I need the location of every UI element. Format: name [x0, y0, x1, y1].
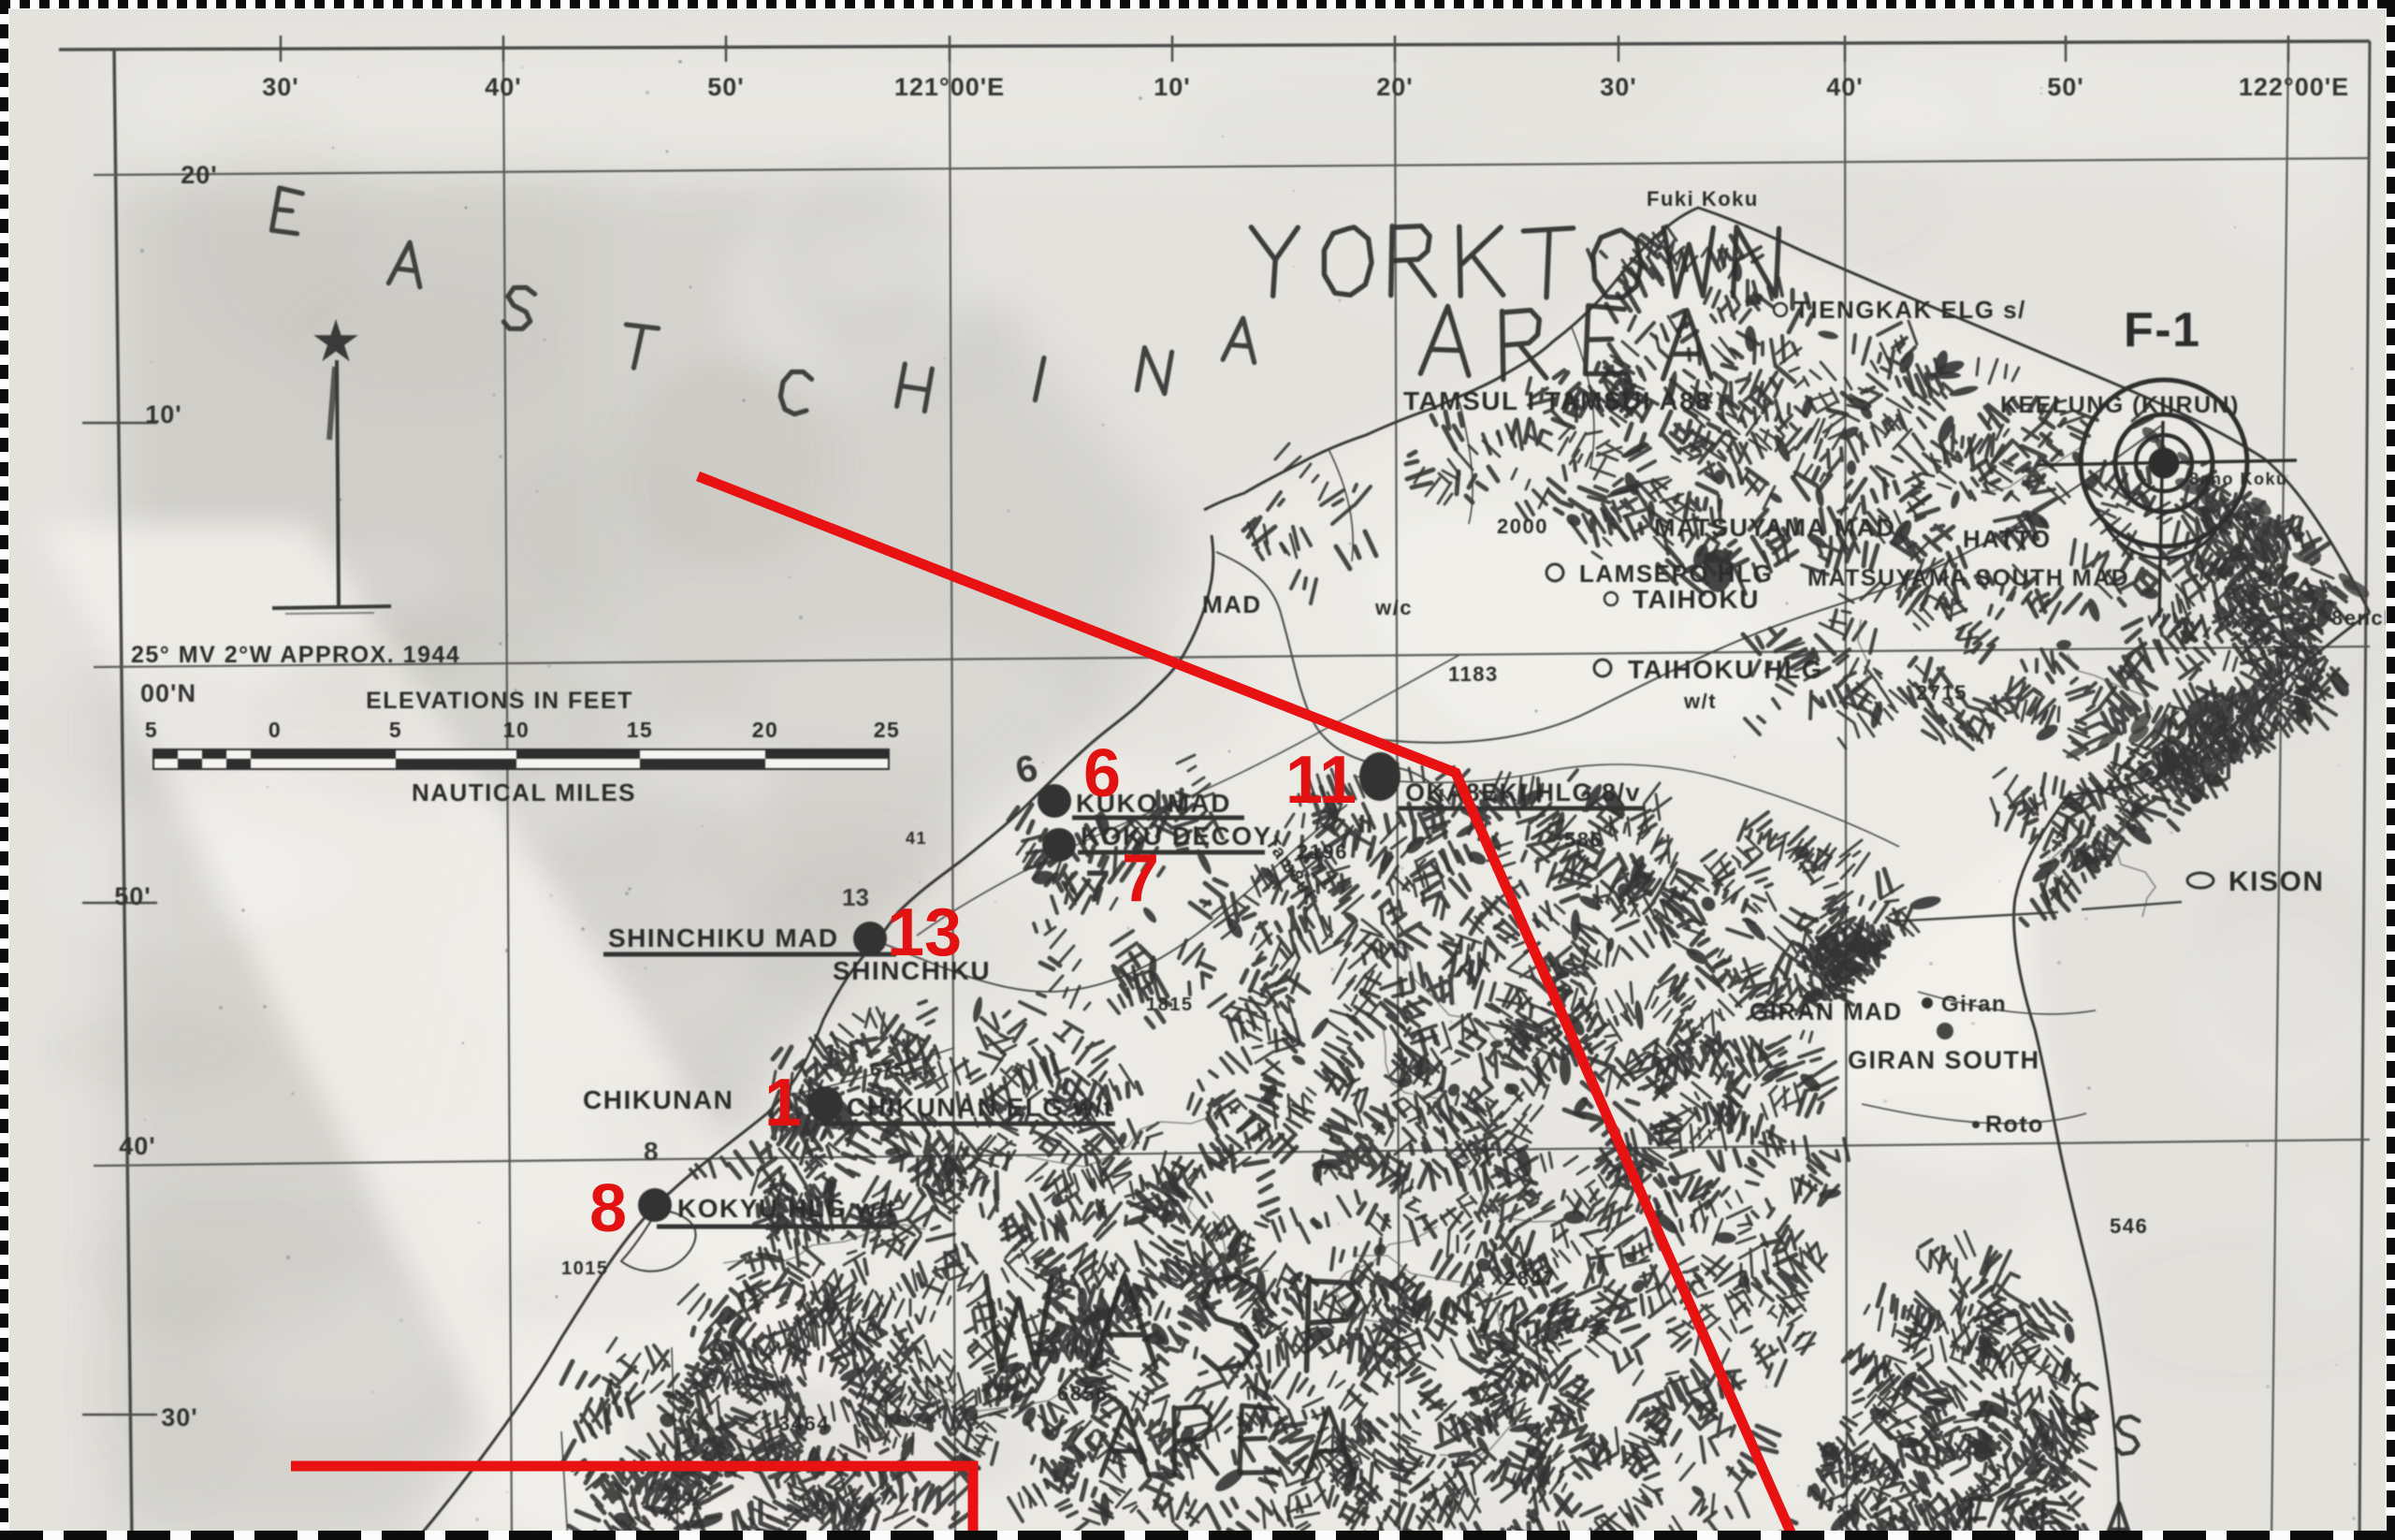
svg-text:Roto: Roto [1985, 1111, 2044, 1138]
svg-text:20': 20' [181, 161, 217, 189]
svg-text:20: 20 [752, 718, 779, 742]
svg-text:50': 50' [114, 882, 151, 910]
svg-text:HATTO: HATTO [1963, 525, 2052, 553]
svg-text:NAUTICAL MILES: NAUTICAL MILES [412, 778, 636, 806]
svg-text:2715: 2715 [1916, 681, 1967, 705]
svg-text:TAIHOKU HLG: TAIHOKU HLG [1628, 655, 1823, 684]
svg-text:0: 0 [269, 718, 282, 742]
svg-text:OKA8EKI HLG 8/v: OKA8EKI HLG 8/v [1405, 778, 1641, 806]
svg-text:ELEVATIONS IN FEET: ELEVATIONS IN FEET [366, 688, 633, 714]
svg-text:20': 20' [1376, 73, 1413, 101]
svg-text:8ench: 8ench [2331, 606, 2395, 630]
svg-text:CHIKUNAN: CHIKUNAN [583, 1085, 733, 1114]
svg-text:2847: 2847 [1504, 1267, 1556, 1290]
svg-text:Fuki Koku: Fuki Koku [1647, 187, 1759, 211]
svg-text:KOKU DECOY: KOKU DECOY [1081, 821, 1272, 850]
svg-text:41: 41 [906, 829, 927, 848]
svg-text:121°00'E: 121°00'E [894, 73, 1005, 101]
svg-text:TIENGKAK ELG s/: TIENGKAK ELG s/ [1794, 296, 2026, 324]
svg-text:MAD: MAD [1202, 590, 1262, 618]
svg-text:GIRAN SOUTH: GIRAN SOUTH [1848, 1046, 2040, 1074]
svg-text:8: 8 [644, 1137, 659, 1166]
svg-text:586: 586 [1564, 828, 1603, 851]
svg-text:30': 30' [262, 73, 298, 101]
svg-text:6: 6 [1083, 736, 1121, 811]
svg-text:10': 10' [1154, 73, 1190, 101]
svg-text:F-1: F-1 [2124, 303, 2201, 357]
svg-text:LAMSEPO HLG: LAMSEPO HLG [1579, 559, 1773, 588]
svg-text:122°00'E: 122°00'E [2239, 73, 2349, 101]
svg-text:3464: 3464 [778, 1412, 830, 1435]
svg-text:SHINCHIKU MAD: SHINCHIKU MAD [608, 923, 839, 952]
svg-text:1015: 1015 [561, 1258, 609, 1279]
svg-text:675: 675 [870, 1060, 906, 1081]
svg-text:10': 10' [145, 400, 181, 429]
svg-text:50': 50' [2047, 73, 2083, 101]
svg-text:15: 15 [627, 718, 654, 742]
svg-text:w/t: w/t [1683, 690, 1717, 713]
svg-text:KISON: KISON [2228, 866, 2325, 897]
svg-text:7: 7 [1122, 841, 1159, 916]
svg-text:6856: 6856 [1057, 1382, 1109, 1405]
svg-text:1815: 1815 [1146, 995, 1194, 1015]
svg-text:1: 1 [821, 1039, 839, 1074]
svg-text:Giran: Giran [1941, 992, 2007, 1017]
svg-text:w/c: w/c [1374, 596, 1413, 619]
svg-text:2000: 2000 [1497, 515, 1548, 538]
svg-text:5: 5 [145, 718, 158, 742]
svg-text:TAIHOKU: TAIHOKU [1633, 585, 1760, 614]
svg-text:25° MV 2°W APPROX. 1944: 25° MV 2°W APPROX. 1944 [131, 642, 460, 668]
svg-text:MATSUYAMA SOUTH MAD: MATSUYAMA SOUTH MAD [1807, 565, 2129, 591]
svg-text:30': 30' [161, 1403, 197, 1431]
svg-text:25: 25 [874, 718, 901, 742]
svg-text:13: 13 [842, 883, 869, 911]
svg-text:546: 546 [2110, 1214, 2148, 1238]
svg-text:8ano Koku: 8ano Koku [2189, 470, 2288, 488]
svg-text:GIRAN MAD: GIRAN MAD [1749, 997, 1903, 1025]
svg-text:40': 40' [119, 1132, 155, 1160]
svg-text:00'N: 00'N [140, 679, 196, 707]
svg-text:30': 30' [1600, 73, 1636, 101]
svg-text:13: 13 [887, 895, 962, 970]
svg-text:2196: 2196 [1297, 840, 1348, 864]
svg-text:5: 5 [389, 718, 402, 742]
svg-text:II: II [1358, 809, 1373, 838]
svg-text:50': 50' [707, 73, 744, 101]
svg-text:KOKYU HLG w/t: KOKYU HLG w/t [677, 1194, 896, 1223]
svg-text:11: 11 [1285, 743, 1357, 818]
svg-text:CHIKUNAN ELG w/t: CHIKUNAN ELG w/t [847, 1093, 1113, 1122]
svg-text:1: 1 [764, 1066, 802, 1140]
svg-text:8: 8 [589, 1171, 627, 1246]
svg-text:TAMSUL I TAMSUI A88: TAMSUL I TAMSUI A88 [1403, 386, 1711, 415]
svg-text:10: 10 [503, 718, 530, 742]
svg-text:1183: 1183 [1448, 662, 1499, 686]
svg-text:40': 40' [485, 73, 521, 101]
svg-text:7: 7 [1085, 863, 1110, 912]
svg-text:KEELUNG (KIIRUN): KEELUNG (KIIRUN) [2000, 392, 2240, 418]
svg-text:40': 40' [1826, 73, 1863, 101]
svg-text:MATSUYAMA MAD: MATSUYAMA MAD [1654, 514, 1896, 542]
